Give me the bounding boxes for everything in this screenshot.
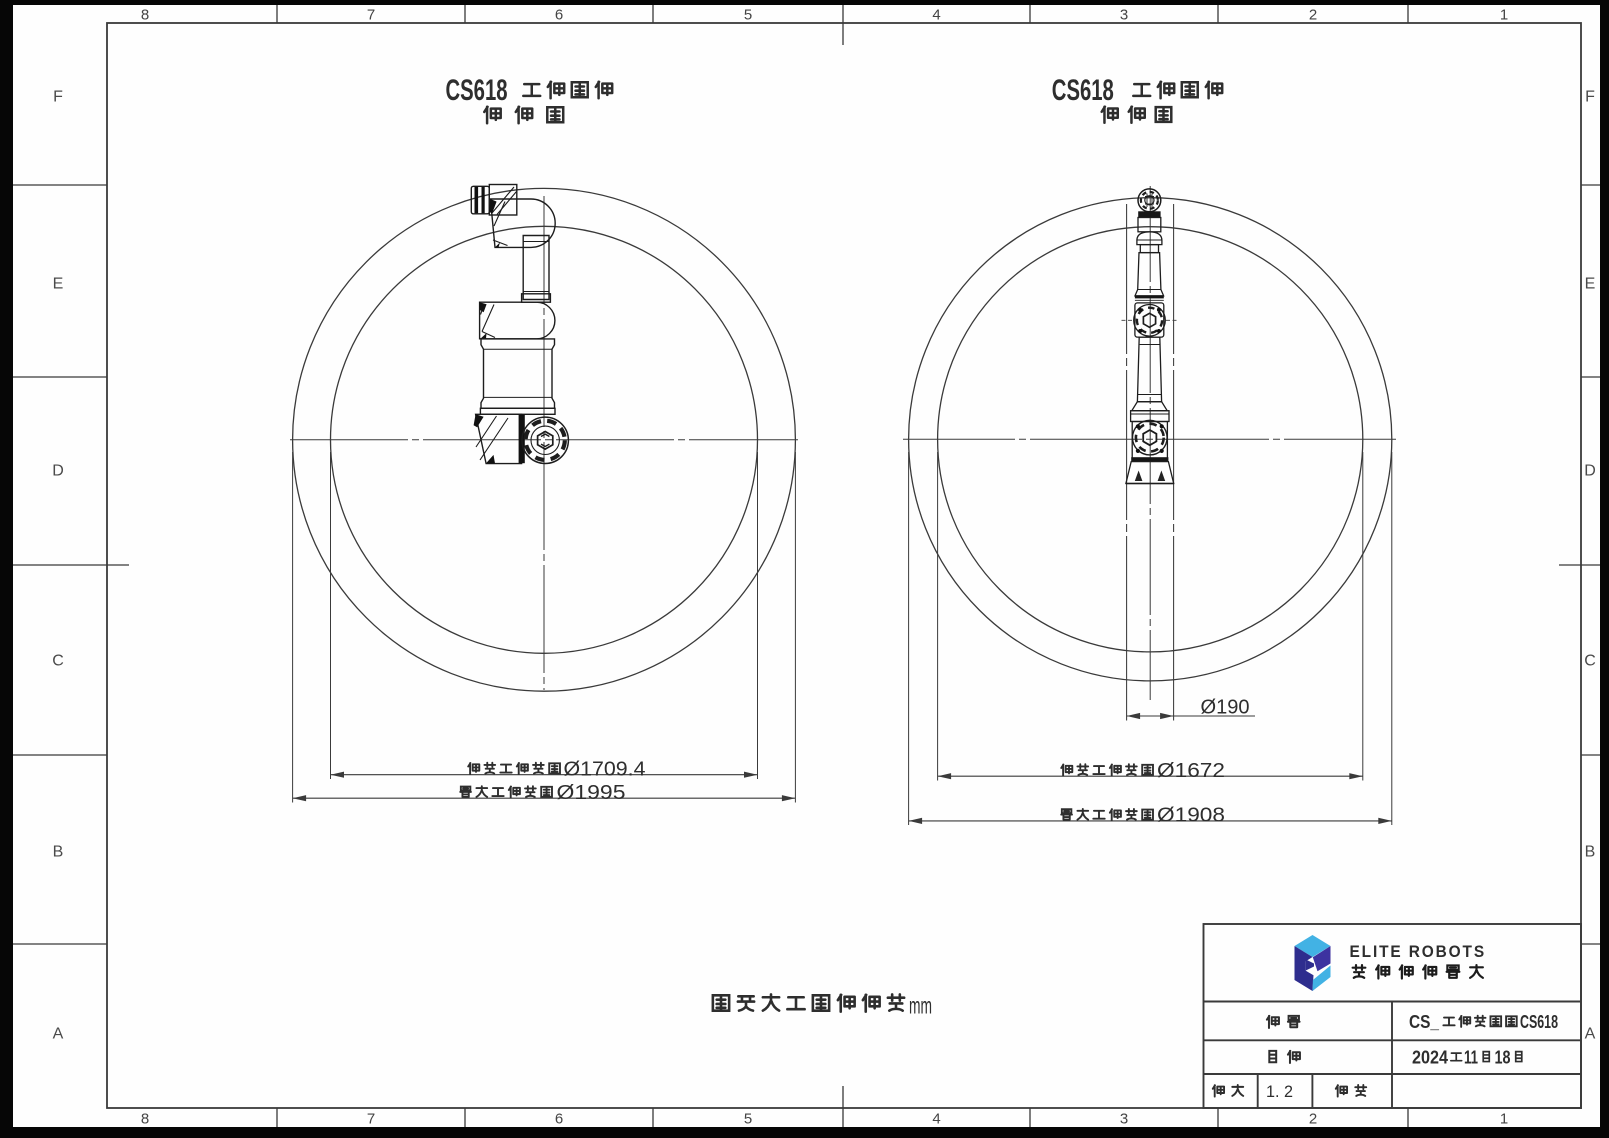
svg-text:6: 6 (555, 7, 563, 24)
svg-text:3: 3 (1120, 7, 1128, 24)
svg-text:F: F (53, 89, 63, 106)
svg-text:8: 8 (141, 7, 149, 24)
svg-text:18: 18 (1495, 1048, 1511, 1068)
svg-text:6: 6 (555, 1111, 563, 1128)
svg-text:2024: 2024 (1412, 1048, 1448, 1068)
svg-text:Ø190: Ø190 (1201, 697, 1250, 719)
svg-text:4: 4 (932, 1111, 940, 1128)
svg-text:Ø1672: Ø1672 (1157, 759, 1225, 782)
svg-text:2: 2 (1309, 7, 1317, 24)
svg-text:8: 8 (141, 1111, 149, 1128)
svg-text:CS618: CS618 (446, 74, 508, 107)
svg-text:B: B (53, 844, 64, 861)
svg-text:4: 4 (932, 7, 940, 24)
svg-text:ELITE ROBOTS: ELITE ROBOTS (1350, 943, 1487, 961)
svg-text:F: F (1585, 89, 1595, 106)
svg-text:3: 3 (1120, 1111, 1128, 1128)
svg-text:C: C (52, 653, 64, 670)
svg-text:A: A (1585, 1026, 1596, 1043)
svg-text:C: C (1584, 653, 1596, 670)
svg-text:E: E (53, 276, 64, 293)
svg-text:1. 2: 1. 2 (1266, 1082, 1293, 1101)
svg-text:B: B (1585, 844, 1596, 861)
svg-text:11: 11 (1464, 1048, 1478, 1068)
svg-text:D: D (1584, 463, 1596, 480)
svg-text:5: 5 (744, 1111, 752, 1128)
svg-text:CS618: CS618 (1520, 1012, 1558, 1032)
svg-text:E: E (1585, 276, 1596, 293)
svg-text:7: 7 (367, 7, 375, 24)
svg-text:7: 7 (367, 1111, 375, 1128)
svg-text:CS_: CS_ (1409, 1012, 1440, 1032)
svg-text:A: A (53, 1026, 64, 1043)
svg-text:5: 5 (744, 7, 752, 24)
svg-text:1: 1 (1500, 1111, 1508, 1128)
svg-text:1: 1 (1500, 7, 1508, 24)
svg-text:2: 2 (1309, 1111, 1317, 1128)
svg-text:Ø1709.4: Ø1709.4 (564, 757, 646, 780)
svg-text:Ø1995: Ø1995 (557, 781, 626, 804)
svg-text:mm: mm (909, 993, 932, 1019)
svg-text:CS618: CS618 (1052, 74, 1114, 107)
svg-text:D: D (52, 463, 64, 480)
svg-text:Ø1908: Ø1908 (1157, 804, 1225, 827)
